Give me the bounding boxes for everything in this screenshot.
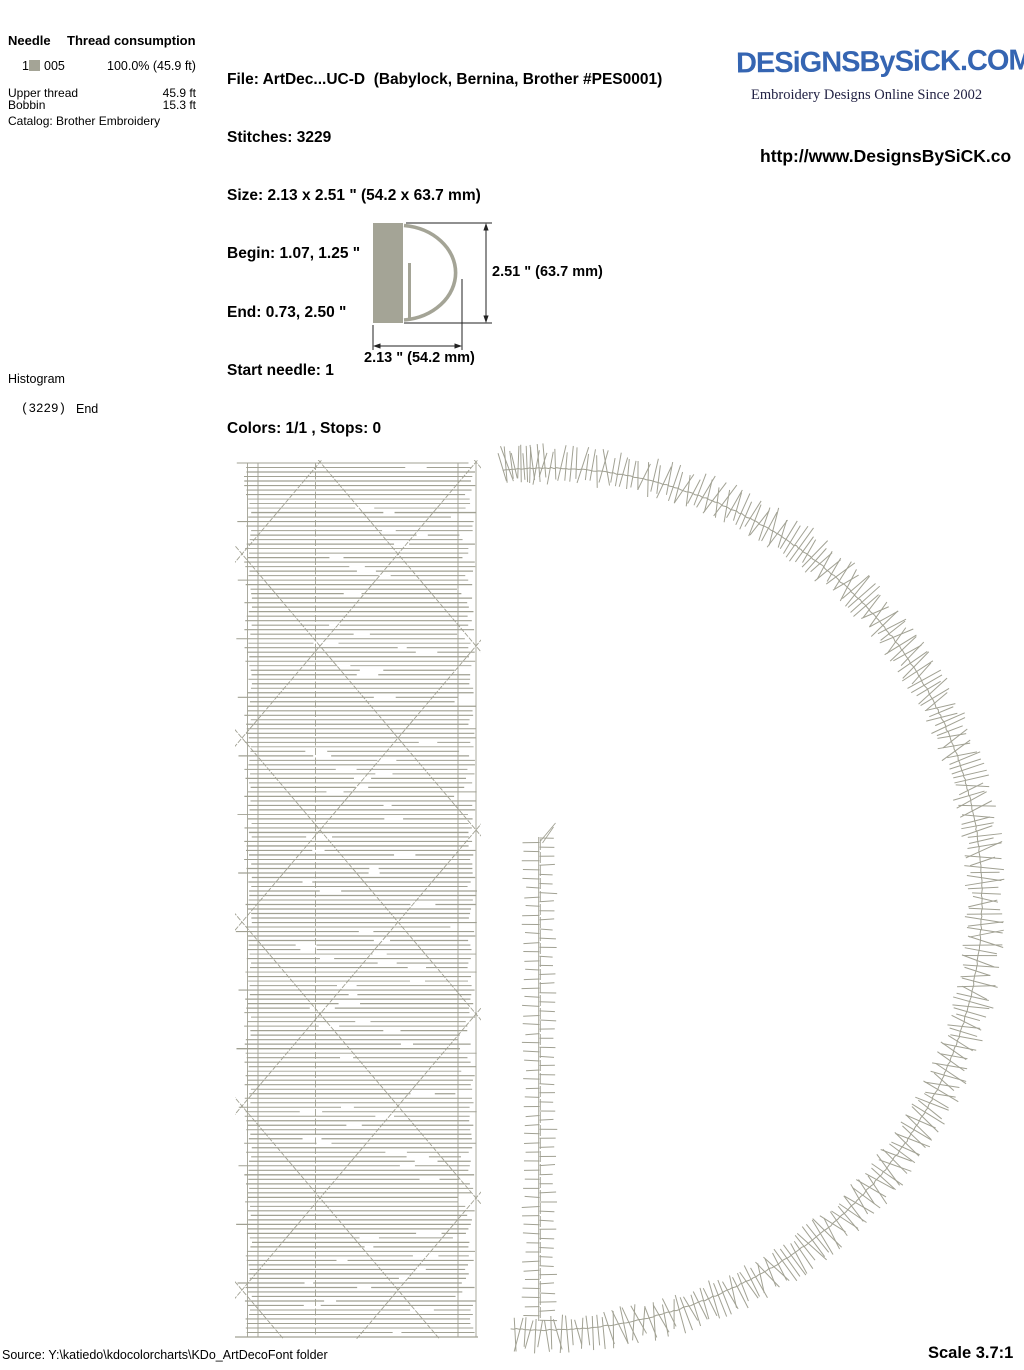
bobbin-label: Bobbin [8,98,45,112]
designsbysick-logo: DESiGNSBySiCK.COM [736,44,1024,80]
width-dimension-label: 2.13 " (54.2 mm) [364,350,475,366]
needle-number: 1 [22,59,29,73]
bobbin-value: 15.3 ft [146,98,196,112]
letter-bar-stitches [235,463,478,1337]
scale-label: Scale 3.7:1 [928,1344,1013,1363]
thread-consumption-value: 100.0% (45.9 ft) [107,59,196,73]
colors-stops-line: Colors: 1/1 , Stops: 0 [227,419,662,438]
histogram-title: Histogram [8,372,65,386]
stitches-line: Stitches: 3229 [227,128,662,147]
file-name-line: File: ArtDec...UC-D (Babylock, Bernina, … [227,70,662,89]
needle-column-header: Needle [8,33,51,48]
thread-consumption-column-header: Thread consumption [67,33,196,48]
thumbnail-letter-bowl [404,226,456,321]
thread-color-swatch [29,60,40,71]
source-path-text: Source: Y:\katiedo\kdocolorcharts\KDo_Ar… [2,1348,328,1362]
size-line: Size: 2.13 x 2.51 " (54.2 x 63.7 mm) [227,186,662,205]
histogram-end-label: End [76,402,98,416]
height-dimension-label: 2.51 " (63.7 mm) [492,264,603,280]
histogram-stitch-count: (3229) [21,402,66,416]
letter-bowl-stitches [498,443,1004,1353]
thumbnail-letter-bar [373,223,403,323]
needle-thread-table: Needle Thread consumption 1 005 100.0% (… [8,33,218,133]
embroidery-design-sheet: { "page": { "bg": "#ffffff", "stitch_col… [0,0,1024,1370]
thread-color-code: 005 [44,59,65,73]
brand-tagline: Embroidery Designs Online Since 2002 [751,87,982,104]
catalog-label: Catalog: Brother Embroidery [8,114,160,128]
letter-bowl-inner-column-stitches [522,823,558,1321]
brand-url-text[interactable]: http://www.DesignsBySiCK.co [760,146,1011,167]
